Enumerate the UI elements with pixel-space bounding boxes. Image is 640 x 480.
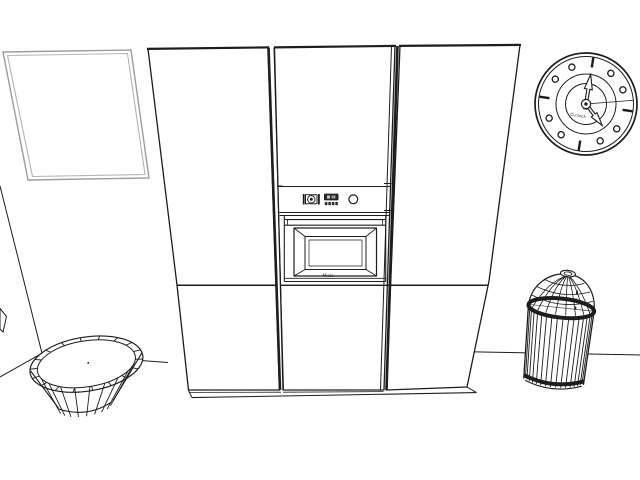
oven-display-glyph-2 (332, 196, 336, 199)
cabinet-right-body (387, 45, 521, 390)
picture-frame[interactable] (3, 50, 149, 180)
oven-display-glyph-1 (327, 196, 330, 199)
oven-brand-label: Miele (322, 273, 334, 278)
picture-frame-outer (3, 50, 149, 180)
wall-corner-line (0, 186, 42, 353)
cabinet-middle-body (275, 46, 396, 390)
cabinet-middle-top-edge (274, 46, 396, 48)
oven-button-3[interactable] (332, 202, 335, 205)
trash-can[interactable] (520, 267, 598, 392)
tall-cabinet-middle[interactable] (274, 46, 396, 390)
oven-knob-left-dot (310, 198, 313, 201)
cabinet-right-top-edge (399, 45, 521, 46)
cabinet-left-body (148, 48, 280, 391)
tall-cabinet-right[interactable] (387, 45, 522, 390)
oven-knob-left-bracket-l (303, 194, 305, 205)
oven-button-1[interactable] (325, 202, 328, 205)
oven-button-2[interactable] (328, 202, 331, 205)
tall-cabinet-left[interactable] (147, 47, 280, 390)
cabinet-run: Miele (147, 45, 521, 398)
oven-knob-left-bracket-r (318, 194, 320, 205)
wall-edge-fragment (0, 309, 7, 333)
floor-bowl[interactable] (26, 329, 151, 424)
oven-button-4[interactable] (335, 202, 338, 205)
oven-display (324, 194, 339, 201)
room-line-drawing: O-clock (0, 0, 640, 480)
cabinet-left-top-edge (147, 47, 269, 49)
scene-canvas: O-clock (0, 0, 640, 480)
wall-clock[interactable]: O-clock (528, 46, 640, 163)
